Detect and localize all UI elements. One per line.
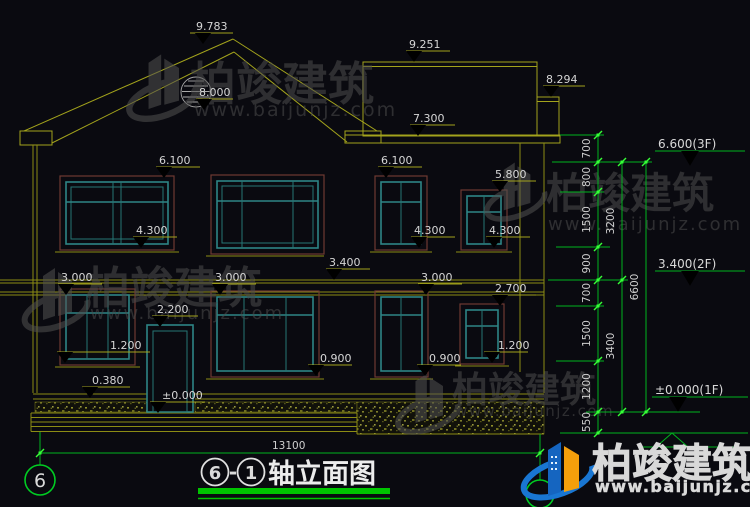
svg-text:1200: 1200: [581, 373, 593, 400]
svg-text:2.200: 2.200: [157, 303, 189, 316]
elevation-drawing: 柏竣建筑 www.baijunjz.com 柏竣建筑 www.baijunjz.…: [0, 0, 750, 507]
svg-text:6.100: 6.100: [159, 154, 191, 167]
svg-text:柏竣建筑: 柏竣建筑: [546, 169, 714, 218]
watermark-top: 柏竣建筑 www.baijunjz.com: [124, 54, 397, 126]
svg-text:6.600(3F): 6.600(3F): [658, 137, 716, 151]
svg-text:8.000: 8.000: [199, 86, 231, 99]
svg-text:7.300: 7.300: [413, 112, 445, 125]
elevation-marker-4300-mid: 4.300: [411, 224, 455, 248]
elevation-marker-4300-right: 4.300: [486, 224, 530, 248]
axis-bubble-left: 6: [25, 465, 55, 495]
svg-text:900: 900: [581, 253, 593, 273]
svg-text:±0.000: ±0.000: [162, 389, 203, 402]
svg-text:3.000: 3.000: [215, 271, 247, 284]
svg-text:0.900: 0.900: [320, 352, 352, 365]
svg-text:9.783: 9.783: [196, 20, 228, 33]
svg-text:800: 800: [581, 167, 593, 187]
elevation-marker-9251: 9.251: [406, 38, 450, 62]
plinth-stipple-mid: [195, 402, 357, 412]
svg-text:4.300: 4.300: [489, 224, 521, 237]
roof-tiled-small: [537, 97, 559, 136]
svg-text:4.300: 4.300: [136, 224, 168, 237]
title-underline-thick: [198, 488, 390, 494]
eave-return-left: [20, 131, 52, 145]
watermark-bottom-right: 柏竣建筑 www.baijunjz.com: [592, 441, 750, 496]
elevation-marker-8294: 8.294: [543, 73, 585, 97]
svg-text:1.200: 1.200: [110, 339, 142, 352]
svg-text:13100: 13100: [272, 440, 305, 452]
plinth-stipple-left: [35, 402, 147, 412]
svg-text:轴立面图: 轴立面图: [268, 458, 376, 490]
floor-marker-3f: 6.600(3F): [655, 137, 745, 166]
drawing-title: 6 - 1 轴立面图: [198, 458, 390, 499]
svg-text:1500: 1500: [581, 320, 593, 347]
svg-text:8.294: 8.294: [546, 73, 578, 86]
svg-text:1: 1: [245, 463, 258, 484]
svg-text:0.900: 0.900: [429, 352, 461, 365]
svg-text:www.baijunjz.com: www.baijunjz.com: [595, 477, 750, 496]
elevation-marker-1200-right: 1.200: [484, 339, 530, 363]
window-2f-left: [55, 176, 179, 252]
floor-marker-2f: 3.400(2F): [655, 257, 745, 286]
svg-text:700: 700: [581, 283, 593, 303]
svg-text:3.000: 3.000: [421, 271, 453, 284]
svg-text:1500: 1500: [581, 206, 593, 233]
elevation-marker-6100-left: 6.100: [156, 154, 200, 178]
svg-text:0.380: 0.380: [92, 374, 124, 387]
svg-text:550: 550: [581, 412, 593, 432]
svg-text:5.800: 5.800: [495, 168, 527, 181]
svg-text:2.700: 2.700: [495, 282, 527, 295]
svg-text:3.000: 3.000: [61, 271, 93, 284]
window-1f-small: [455, 304, 509, 366]
svg-text:3.400: 3.400: [329, 256, 361, 269]
svg-text:6: 6: [209, 463, 222, 484]
elevation-marker-0900-left: 0.900: [308, 352, 352, 376]
svg-text:www.baijunjz.com: www.baijunjz.com: [548, 214, 742, 235]
svg-text:700: 700: [581, 138, 593, 158]
watermark-logo-color: [519, 442, 598, 505]
svg-text:6600: 6600: [629, 274, 641, 301]
svg-text:9.251: 9.251: [409, 38, 441, 51]
floor-marker-1f: ±0.000(1F): [652, 383, 748, 412]
svg-text:www.baijunjz.com: www.baijunjz.com: [194, 99, 397, 121]
svg-text:4.300: 4.300: [414, 224, 446, 237]
svg-text:3200: 3200: [605, 208, 617, 235]
elevation-marker-3400: 3.400: [326, 256, 370, 280]
elevation-marker-9783: 9.783: [190, 20, 233, 44]
elevation-marker-2700: 2.700: [492, 282, 536, 306]
svg-text:6.100: 6.100: [381, 154, 413, 167]
svg-text:±0.000(1F): ±0.000(1F): [655, 383, 723, 397]
elevation-marker-6100-right: 6.100: [378, 154, 422, 178]
svg-text:3400: 3400: [605, 333, 617, 360]
svg-text:1.200: 1.200: [498, 339, 530, 352]
svg-text:-: -: [229, 460, 237, 484]
svg-text:3.400(2F): 3.400(2F): [658, 257, 716, 271]
window-2f-middle: [206, 175, 324, 256]
svg-text:6: 6: [34, 470, 46, 492]
elevation-marker-7300: 7.300: [410, 112, 455, 136]
